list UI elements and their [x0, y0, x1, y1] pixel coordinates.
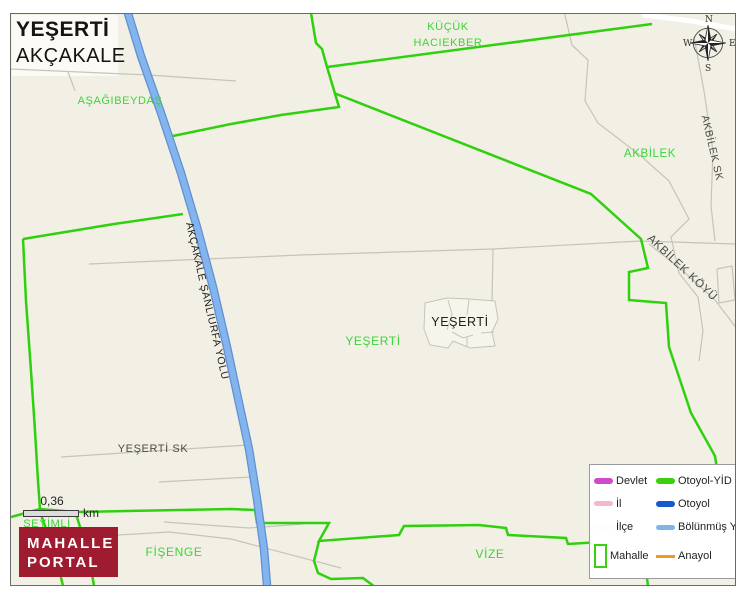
compass-east-label: E — [729, 39, 736, 49]
legend-swatch — [656, 555, 675, 558]
legend-item: Bölünmüş Y — [656, 521, 736, 533]
legend-item: İlçe — [594, 521, 656, 533]
map-stage: AŞAĞIBEYDAŞKÜÇÜKHACIEKBERAKBİLEKAKBİLEK … — [0, 0, 748, 598]
legend-label: İl — [616, 498, 622, 510]
legend-swatch — [594, 544, 607, 568]
legend-item: Otoyol — [656, 498, 736, 510]
legend-label: Otoyol — [678, 498, 710, 510]
legend-item: Anayol — [656, 550, 736, 562]
legend-swatch — [594, 478, 613, 484]
map-title: YEŞERTİ — [16, 17, 126, 43]
map-canvas[interactable]: AŞAĞIBEYDAŞKÜÇÜKHACIEKBERAKBİLEKAKBİLEK … — [10, 13, 736, 586]
legend-item: İl — [594, 498, 656, 510]
legend-item: Otoyol-YİD — [656, 475, 736, 487]
legend-item: Devlet — [594, 475, 656, 487]
legend-label: Otoyol-YİD — [678, 475, 732, 487]
legend-swatch — [594, 501, 613, 506]
scalebar-unit: km — [83, 506, 99, 520]
map-legend: DevletOtoyol-YİDİlOtoyolİlçeBölünmüş YMa… — [589, 464, 736, 579]
compass-south-label: S — [705, 64, 711, 74]
legend-label: İlçe — [616, 521, 633, 533]
legend-label: Bölünmüş Y — [678, 521, 736, 533]
legend-swatch — [656, 525, 675, 530]
legend-swatch — [656, 501, 675, 507]
legend-item: Mahalle — [594, 544, 656, 568]
legend-label: Devlet — [616, 475, 647, 487]
compass-rose-icon — [688, 23, 728, 63]
legend-swatch — [656, 478, 675, 484]
compass-rose: N S W E — [679, 14, 736, 80]
scalebar-value: 0,36 — [24, 494, 80, 508]
map-subtitle: AKÇAKALE — [16, 43, 126, 69]
scalebar — [23, 510, 79, 517]
logo-line2: PORTAL — [27, 553, 118, 572]
legend-label: Anayol — [678, 550, 712, 562]
map-title-block: YEŞERTİ AKÇAKALE — [16, 17, 126, 69]
mahalle-portal-logo: MAHALLE PORTAL — [19, 527, 118, 577]
logo-line1: MAHALLE — [27, 534, 118, 553]
legend-swatch — [594, 525, 613, 530]
legend-label: Mahalle — [610, 550, 649, 562]
